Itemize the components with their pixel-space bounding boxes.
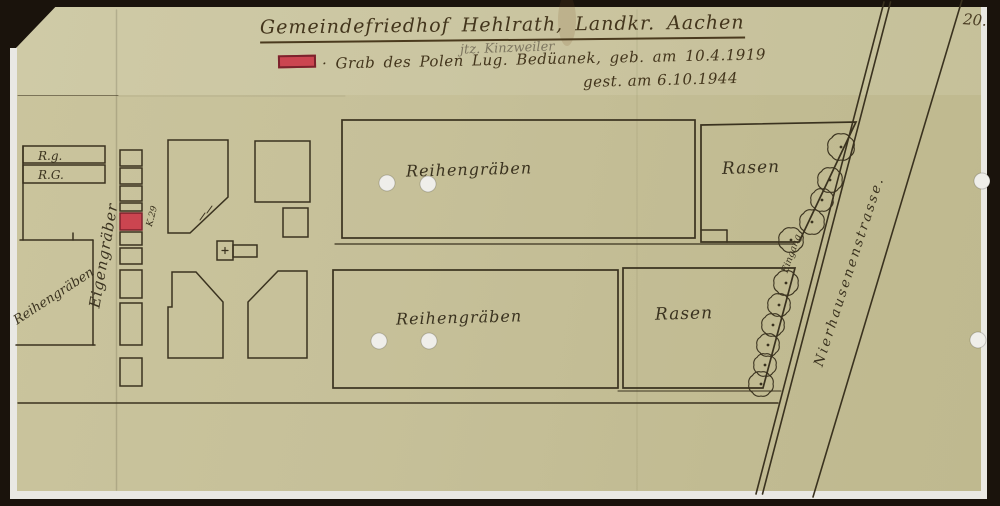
grave-cell xyxy=(120,150,142,166)
tree-center-dot xyxy=(767,344,770,347)
punch-hole xyxy=(371,333,387,349)
plan-title: Gemeindefriedhof Hehlrath, Landkr. Aache… xyxy=(260,13,745,43)
rasen-top-label: Rasen xyxy=(722,159,781,178)
grave-marker-swatch xyxy=(278,55,316,69)
scan-corner-wedge xyxy=(10,0,62,48)
tree-center-dot xyxy=(772,324,775,327)
punch-hole xyxy=(970,332,986,348)
building-outline-4 xyxy=(168,272,223,358)
building-outline-1 xyxy=(168,140,228,233)
rg-strip-1-outline xyxy=(23,146,105,163)
tree-center-dot xyxy=(840,146,843,149)
rasen-bottom-outline xyxy=(623,268,795,388)
punch-hole xyxy=(974,173,990,189)
grave-cell xyxy=(120,168,142,184)
grave-cell xyxy=(120,270,142,298)
tree-center-dot xyxy=(778,304,781,307)
punch-hole xyxy=(421,333,437,349)
building-outline-3 xyxy=(283,208,308,237)
reihengraeben-top-label: Reihengräben xyxy=(406,160,533,179)
grave-cell xyxy=(120,303,142,345)
rg-strip-2-label: R.G. xyxy=(38,169,64,181)
tree-center-dot xyxy=(764,364,767,367)
rg-strip-2-outline xyxy=(23,165,105,183)
tree-center-dot xyxy=(829,179,832,182)
tree-center-dot xyxy=(785,282,788,285)
tree-center-dot xyxy=(811,221,814,224)
rasen-bottom-label: Rasen xyxy=(655,305,713,324)
eigengraeber-grave-cells xyxy=(120,150,142,386)
reihengraeben-bottom-outline xyxy=(333,270,618,388)
street-right-edge-line xyxy=(813,0,962,497)
reihengraeben-top-outline xyxy=(342,120,695,238)
reihengraeben-bottom-label: Reihengräben xyxy=(396,308,523,327)
punch-hole xyxy=(379,175,395,191)
chapel-annex-outline xyxy=(233,245,257,257)
grave-cell xyxy=(120,203,142,211)
tree-center-dot xyxy=(760,383,763,386)
grave-cell xyxy=(120,248,142,264)
rg-strip-1-label: R.g. xyxy=(38,150,62,162)
building-outline-5 xyxy=(248,271,307,358)
grave-cell xyxy=(120,232,142,245)
scanned-cemetery-plan: Gemeindefriedhof Hehlrath, Landkr. Aache… xyxy=(0,0,1000,506)
marked-grave-cell xyxy=(120,213,142,230)
tree-center-dot xyxy=(821,199,824,202)
building-outline-2 xyxy=(255,141,310,202)
legend-text-line-2: gest. am 6.10.1944 xyxy=(583,71,738,90)
grave-cell xyxy=(120,358,142,386)
page-number: 20. xyxy=(963,12,988,29)
